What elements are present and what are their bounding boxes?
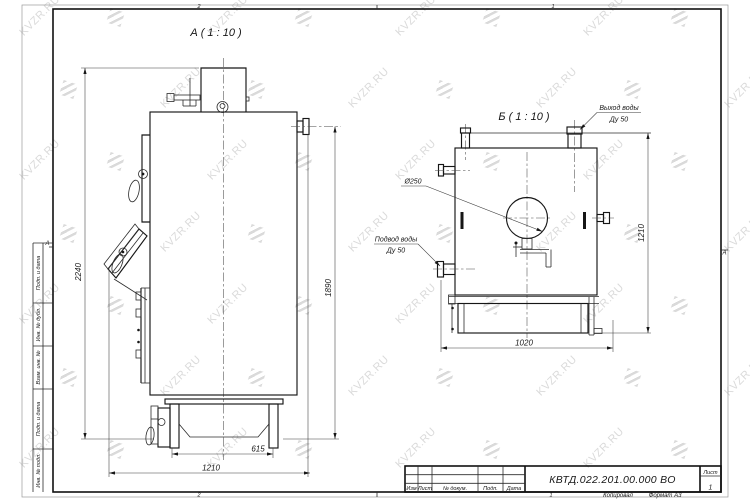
svg-text:Ду 50: Ду 50 (386, 248, 405, 255)
view-b-base (449, 295, 603, 335)
svg-text:Выход воды: Выход воды (599, 104, 639, 112)
tb-col-podp: Подп. (483, 486, 498, 492)
view-a-upper-door (127, 135, 150, 222)
side-col-podp-data-1: Подп. и дата (36, 256, 42, 290)
tb-copied-label: Копировал (603, 493, 633, 499)
dim-total-height: 2240 (74, 263, 83, 282)
tb-sheet-number: 1 (709, 485, 713, 492)
side-col-inv-podl: Инв. № подл. (36, 453, 42, 487)
tb-format-label: Формат А3 (649, 493, 682, 499)
zone-bottom-2: 2 (196, 493, 200, 499)
dim-height: 1210 (637, 224, 646, 242)
label-water-outlet: Выход воды Ду 50 (580, 104, 641, 130)
side-col-vzam-inv: Взам. инв. № (36, 350, 42, 384)
drawing-canvas: 2 1 2 1 А А Подп. и дата Инв. № дубл. Вз… (0, 0, 750, 500)
dim-flue-diameter: Ø250 (403, 179, 421, 186)
side-col-podp-data-2: Подп. и дата (36, 402, 42, 436)
zone-right-a: А (721, 251, 726, 257)
svg-text:Ду 50: Ду 50 (609, 117, 628, 124)
zone-left-a: А (44, 241, 49, 247)
tb-col-list: Лист (417, 486, 433, 492)
dim-base-width: 615 (251, 445, 265, 454)
drawing-sheet: KVZR.RUKVZR.RUKVZR.RUKVZR.RUKVZR.RUKVZR.… (0, 0, 750, 500)
view-b-title: Б ( 1 : 10 ) (498, 111, 550, 123)
dim-body-height: 1890 (324, 279, 333, 297)
view-b-drain-valve (513, 239, 551, 268)
sheet-frame: 2 1 2 1 А А (22, 4, 728, 498)
view-a-chimney (167, 68, 249, 113)
view-b-body (455, 148, 597, 295)
view-a-title: А ( 1 : 10 ) (189, 27, 242, 39)
dim-width: 1020 (515, 339, 533, 348)
view-a-hinge-strip (136, 288, 150, 383)
view-b: Б ( 1 : 10 ) (374, 104, 651, 352)
label-water-inlet: Подвод воды Ду 50 (374, 236, 440, 267)
tb-col-data: Дата (506, 486, 522, 492)
side-col-inv-dubl: Инв. № дубл. (36, 308, 42, 342)
view-b-side-fittings (433, 165, 614, 278)
side-column-table: Подп. и дата Инв. № дубл. Взам. инв. № П… (33, 243, 53, 492)
title-block: Изм Лист № докум. Подп. Дата КВТД.022.20… (405, 466, 721, 499)
view-a: А ( 1 : 10 ) (74, 27, 341, 477)
view-a-outlet-fitting (291, 119, 341, 135)
svg-text:Подвод воды: Подвод воды (375, 236, 418, 244)
tb-col-ndokum: № докум. (443, 486, 467, 492)
zone-top-2: 2 (196, 4, 200, 10)
view-a-base (145, 399, 283, 448)
dim-depth: 1210 (202, 464, 220, 473)
tb-doc-number: КВТД.022.201.00.000 ВО (549, 474, 675, 486)
zone-bottom-1: 1 (549, 493, 552, 499)
tb-sheet-label: Лист (702, 470, 718, 476)
zone-top-1: 1 (551, 4, 554, 10)
view-b-top-pipes (461, 127, 583, 148)
tb-col-izm: Изм (406, 486, 416, 492)
view-b-dimensions: 1020 1210 Ø250 Выход воды Ду 50 (374, 104, 651, 352)
